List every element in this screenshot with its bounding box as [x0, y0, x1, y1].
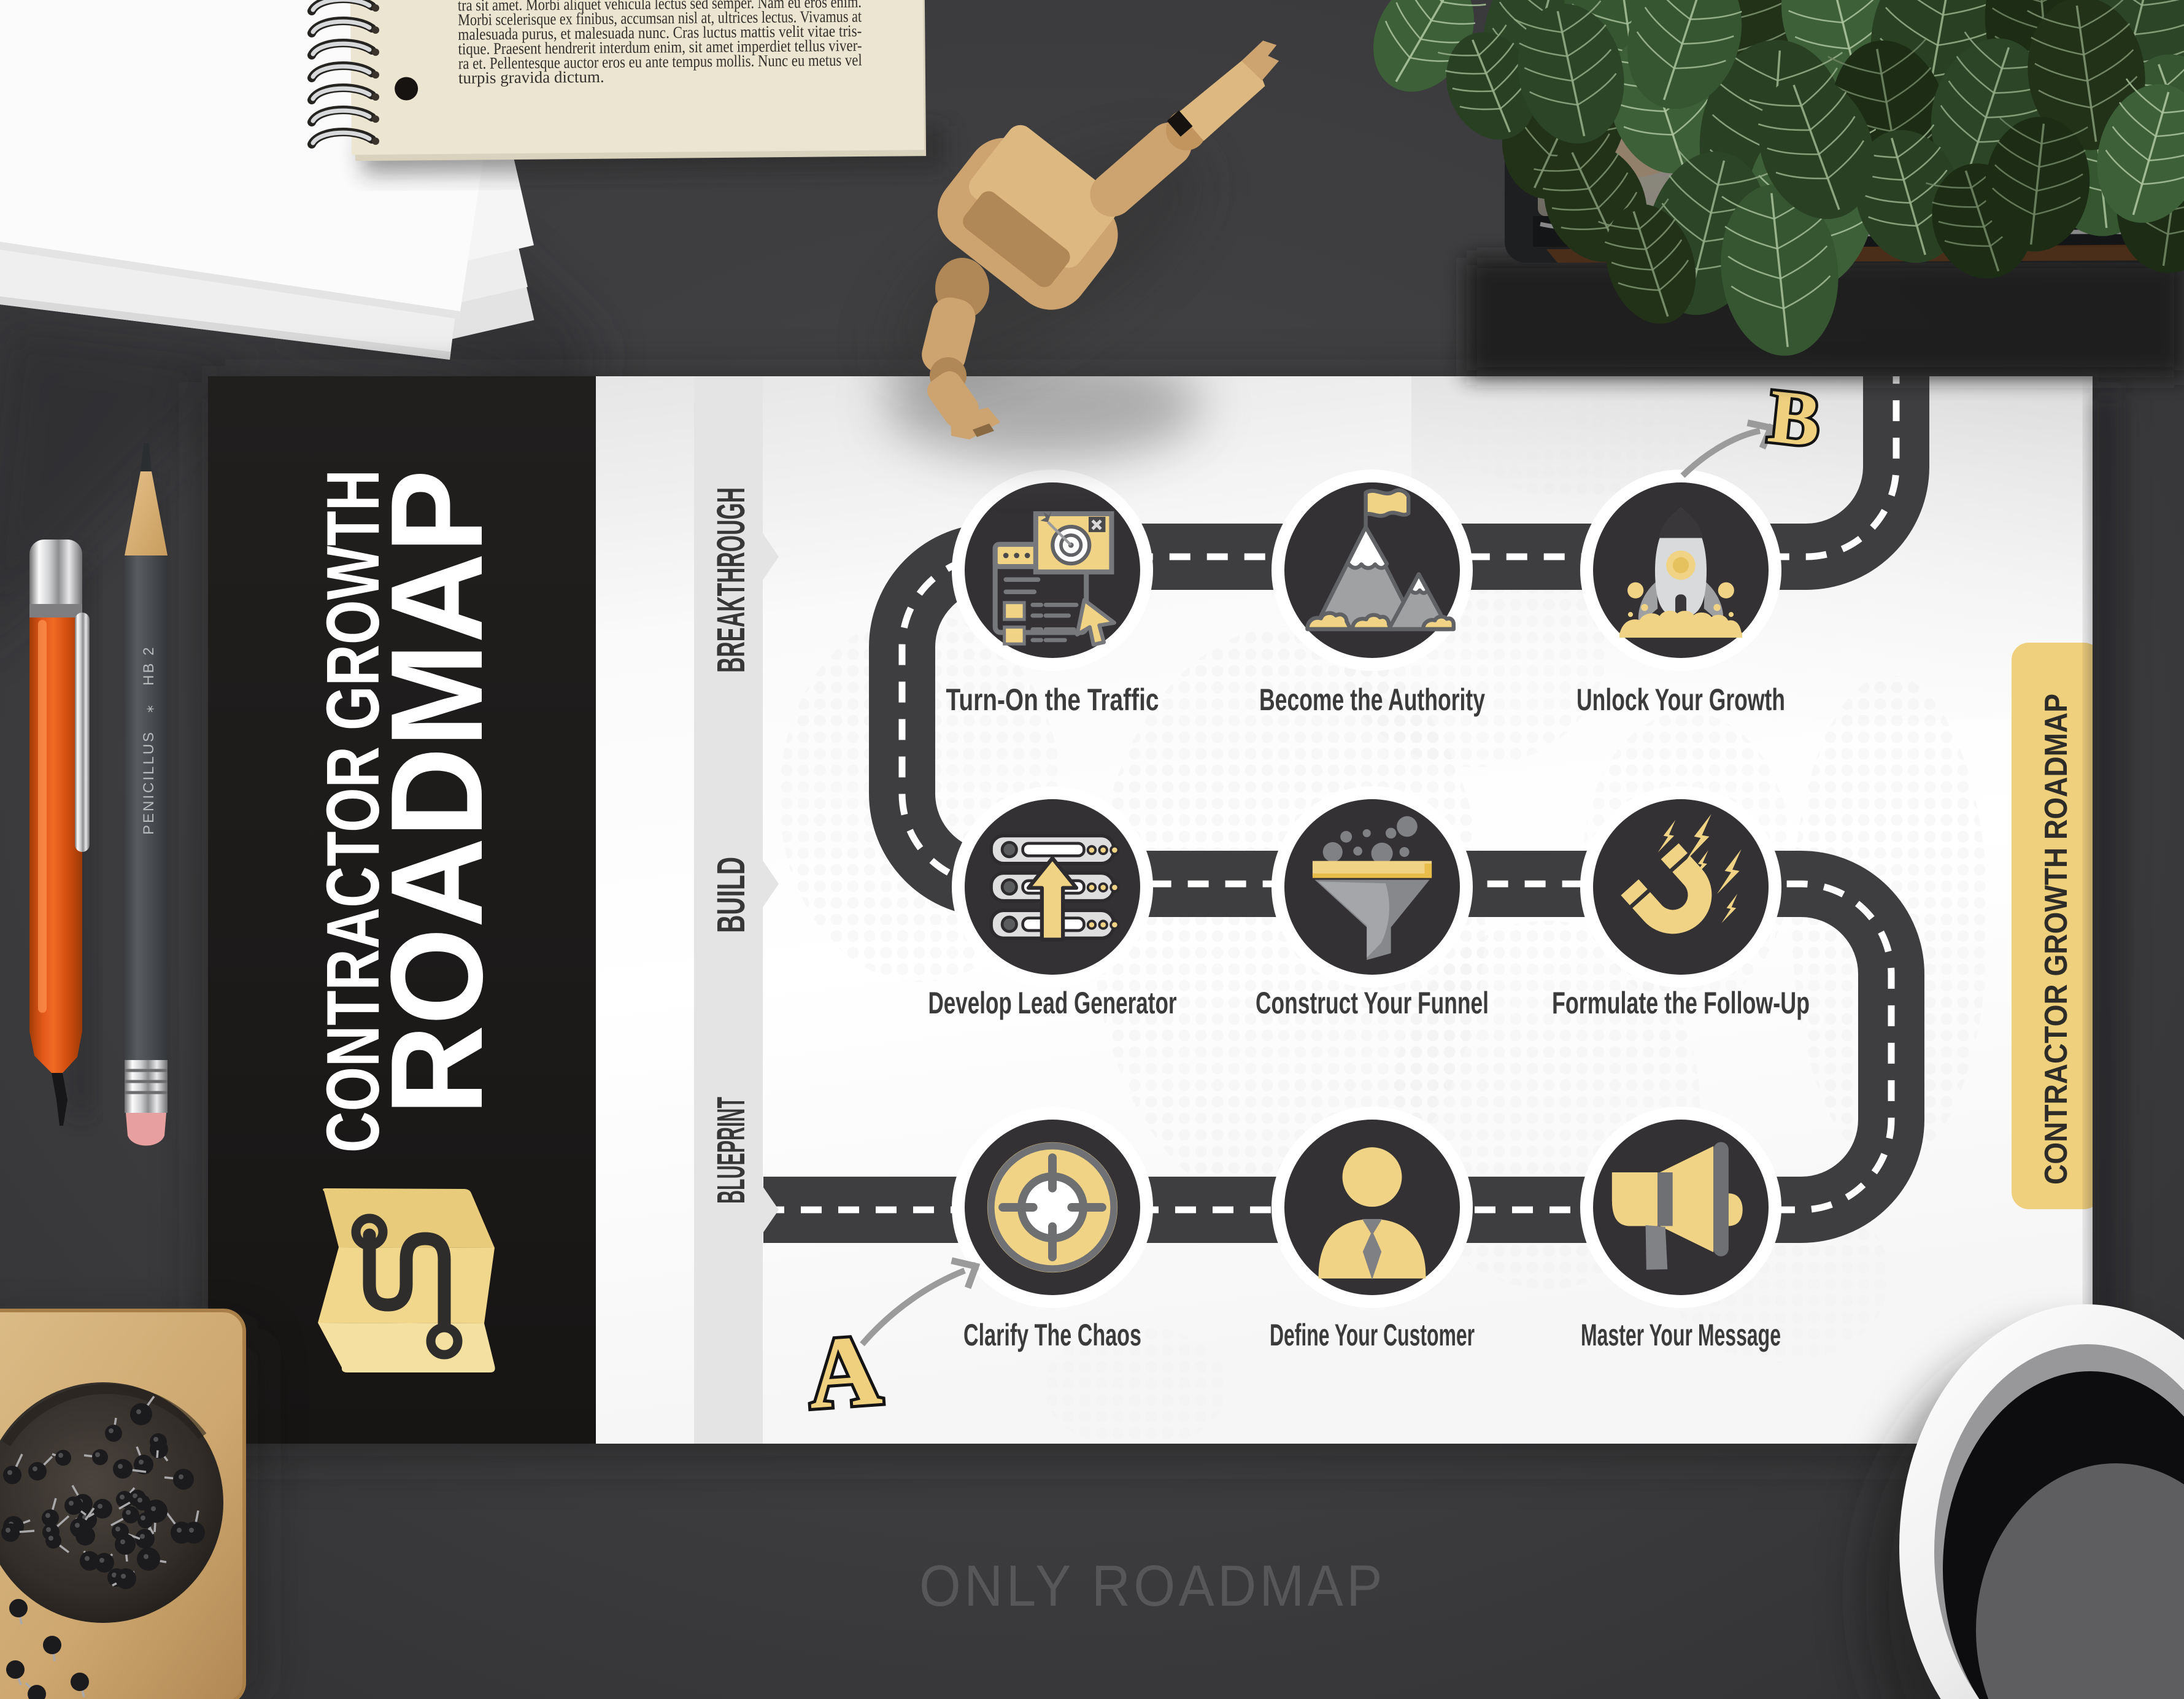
svg-text:Master Your Message: Master Your Message	[1581, 1318, 1781, 1352]
svg-text:turpis gravida dictum.: turpis gravida dictum.	[458, 68, 604, 87]
svg-text:Develop Lead Generator: Develop Lead Generator	[928, 986, 1177, 1020]
svg-text:BUILD: BUILD	[709, 857, 753, 933]
svg-text:Construct Your Funnel: Construct Your Funnel	[1256, 986, 1489, 1020]
svg-text:Clarify The Chaos: Clarify The Chaos	[963, 1318, 1141, 1352]
svg-text:CONTRACTOR GROWTH ROADMAP: CONTRACTOR GROWTH ROADMAP	[2039, 694, 2074, 1185]
svg-text:Define Your Customer: Define Your Customer	[1270, 1318, 1475, 1352]
svg-text:ONLY ROADMAP: ONLY ROADMAP	[919, 1554, 1386, 1619]
svg-text:ROADMAP: ROADMAP	[364, 470, 510, 1115]
svg-text:B: B	[1765, 374, 1824, 463]
svg-text:BLUEPRINT: BLUEPRINT	[709, 1097, 753, 1204]
svg-text:Turn-On the Traffic: Turn-On the Traffic	[946, 683, 1159, 717]
svg-text:BREAKTHROUGH: BREAKTHROUGH	[709, 487, 753, 673]
svg-text:Unlock Your Growth: Unlock Your Growth	[1576, 683, 1785, 717]
svg-text:PENICILLUS ⁎ HB 2: PENICILLUS ⁎ HB 2	[141, 646, 157, 835]
svg-text:Formulate the Follow-Up: Formulate the Follow-Up	[1552, 986, 1810, 1020]
svg-text:Become the Authority: Become the Authority	[1259, 683, 1485, 717]
